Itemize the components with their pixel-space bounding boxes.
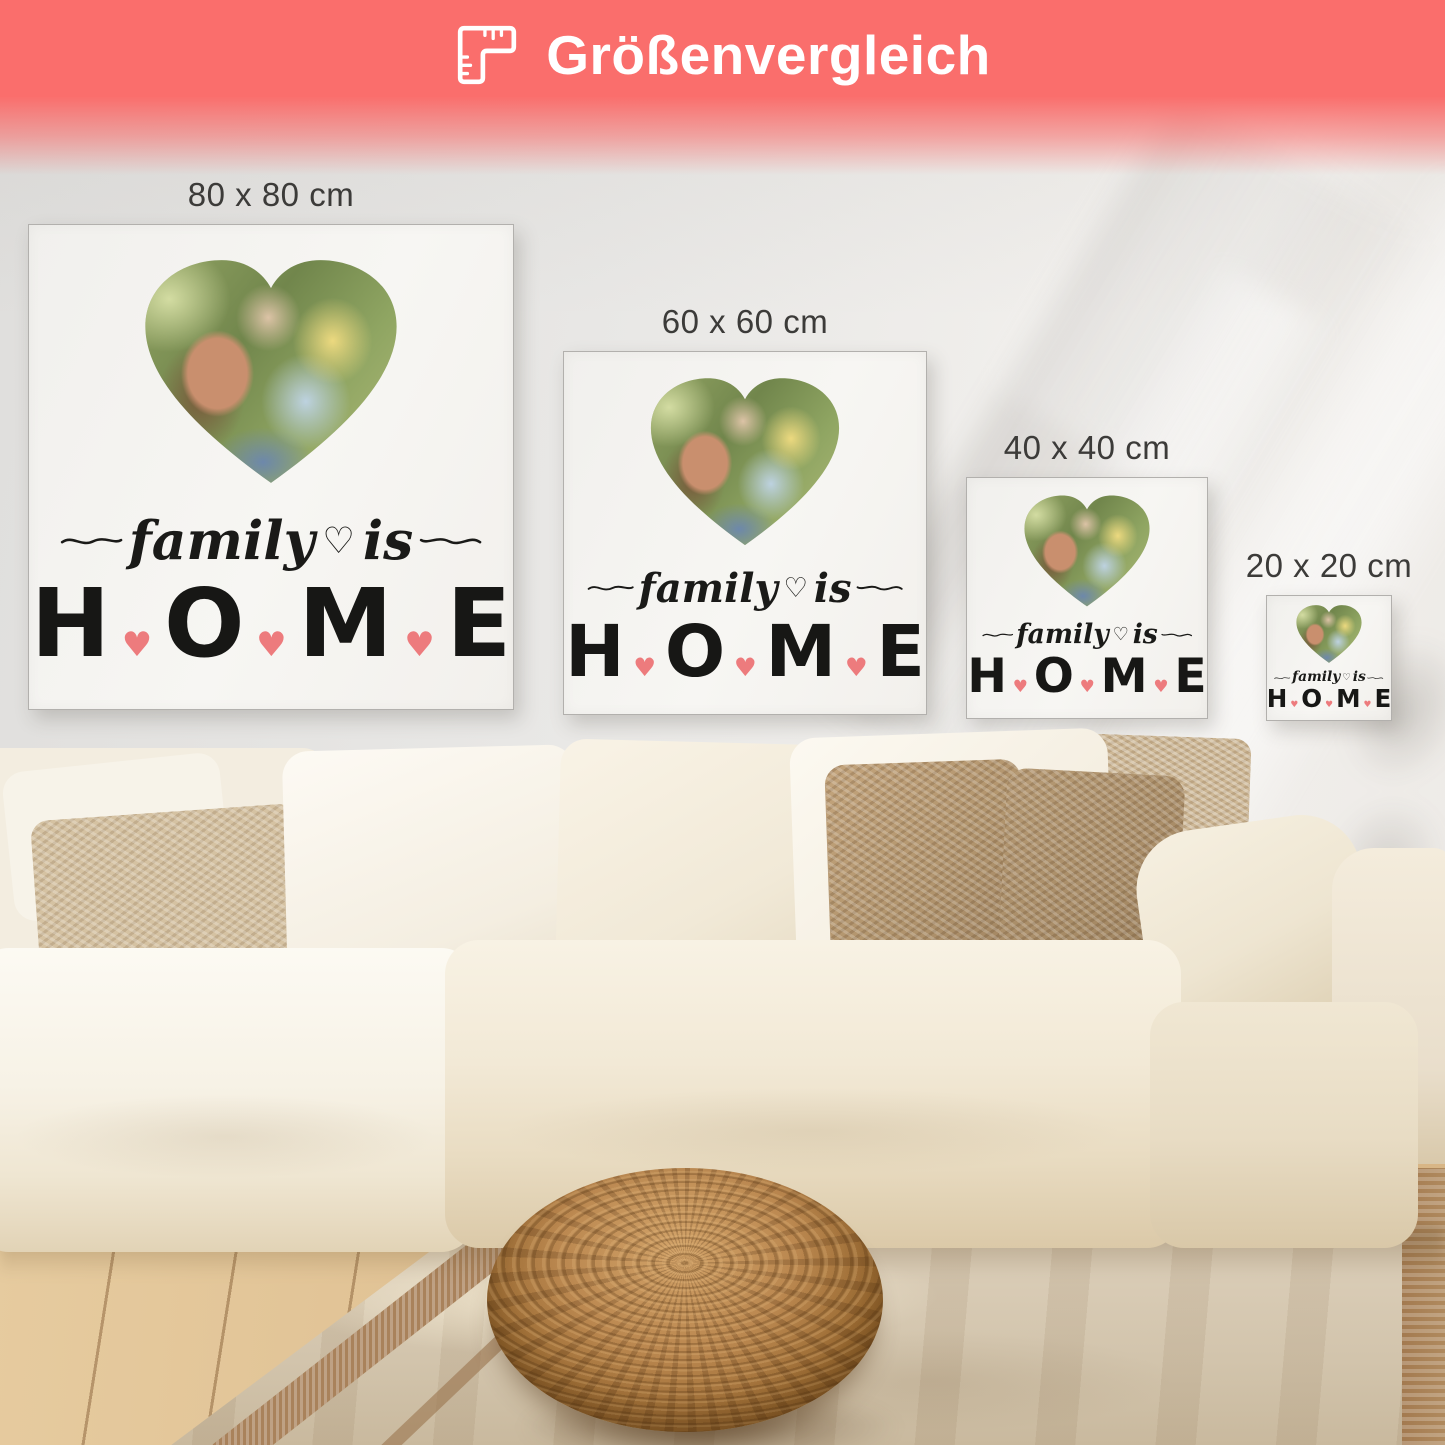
header-content: Größenvergleich [0,0,1445,88]
sofa-seat-cushion [0,948,475,1252]
ruler-icon [454,22,520,88]
page-title: Größenvergleich [546,25,991,86]
header-banner: Größenvergleich [0,0,1445,175]
size-comparison-mockup: Größenvergleich 80 x 80 cm family ♡ is H… [0,0,1445,1445]
sofa-seat-cushion [1150,1002,1418,1248]
seat-crease-shading [0,948,475,1252]
wicker-pouf [487,1168,883,1432]
